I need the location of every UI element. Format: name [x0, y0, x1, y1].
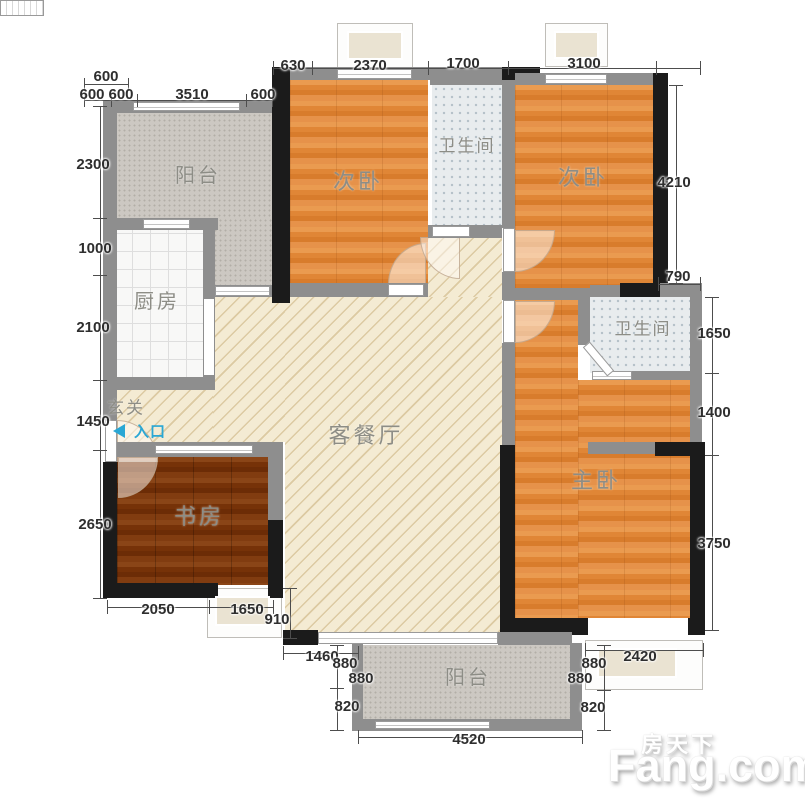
dim-label: 2370	[353, 58, 386, 75]
window	[133, 102, 240, 111]
room-label-living-dining: 客餐厅	[328, 425, 403, 447]
balcony-top-floor-ext	[213, 218, 272, 295]
room-label-master-bedroom: 主卧	[571, 470, 621, 492]
balcony-bottom-window	[375, 721, 490, 729]
room-label-kitchen: 厨房	[134, 292, 180, 312]
dim-label: 2420	[623, 649, 656, 666]
dim-label: 820	[580, 700, 605, 717]
dim-label: 3750	[697, 536, 730, 553]
wall	[103, 100, 117, 420]
dim-label: 2100	[76, 320, 109, 337]
dim-label: 600	[108, 87, 133, 104]
floor-plan: 600 600 600 3510 600 630 2370 1700 3100 …	[0, 0, 805, 800]
bay-window-inner	[347, 31, 403, 60]
dim-label: 1650	[697, 326, 730, 343]
balcony-door-window	[318, 632, 498, 644]
dim-label: 4210	[657, 175, 690, 192]
wall	[690, 283, 702, 455]
wall	[590, 285, 620, 297]
dim-label: 600	[250, 87, 275, 104]
entrance-arrow-icon	[113, 424, 125, 438]
dim-label: 630	[280, 58, 305, 75]
dim-label: 880	[567, 671, 592, 688]
wall	[498, 632, 572, 645]
entrance-label: 入口	[134, 421, 166, 442]
dim-label: 3510	[175, 87, 208, 104]
dim-label: 2300	[76, 157, 109, 174]
bedroom-a-door-leaf	[388, 284, 424, 296]
room-label-bedroom-b: 次卧	[558, 167, 608, 189]
wall	[502, 272, 515, 300]
dim-label: 880	[348, 671, 373, 688]
bedroom-b-door-leaf	[503, 228, 515, 272]
wall	[588, 442, 655, 454]
wall-black	[268, 520, 283, 598]
dim-label: 1450	[76, 414, 109, 431]
dim-label: 910	[264, 612, 289, 629]
window	[545, 74, 607, 84]
room-label-bathroom-b: 卫生间	[615, 321, 672, 338]
dim-label: 1650	[230, 602, 263, 619]
window	[215, 286, 270, 296]
living-floor-main	[285, 297, 502, 633]
wall	[115, 377, 215, 390]
wall	[630, 371, 690, 380]
wall-black	[620, 283, 660, 297]
dim-label: 1400	[697, 405, 730, 422]
room-label-foyer: 玄关	[107, 400, 145, 417]
dim-label: 4520	[452, 732, 485, 749]
living-floor-west	[213, 295, 285, 442]
dim-label: 600	[79, 87, 104, 104]
dim-label: 600	[93, 69, 118, 86]
dim-label: 1700	[446, 56, 479, 73]
master-bedroom-floor-right	[578, 380, 690, 618]
wall-black	[103, 583, 218, 598]
wall	[578, 297, 590, 345]
wall-black	[655, 442, 705, 456]
wall	[502, 343, 515, 445]
room-label-bathroom-a: 卫生间	[439, 138, 496, 155]
watermark-brand-en: Fang.com	[608, 740, 805, 792]
master-door-leaf	[503, 300, 515, 343]
bathroom-a-door-leaf	[432, 226, 470, 237]
room-label-study: 书房	[174, 506, 224, 528]
wall	[502, 80, 515, 228]
room-label-balcony-top: 阳台	[175, 166, 221, 186]
study-window	[155, 445, 253, 454]
dim-label: 1000	[78, 241, 111, 258]
wall	[268, 442, 283, 520]
dim-label: 2650	[78, 517, 111, 534]
wall-black	[500, 445, 515, 631]
master-bedroom-floor-left	[515, 300, 578, 618]
room-label-balcony-bottom: 阳台	[445, 668, 491, 688]
dim-label: 820	[334, 699, 359, 716]
wall-black	[688, 618, 705, 635]
window	[143, 219, 190, 229]
dim-label: 3100	[567, 56, 600, 73]
bathroom-a-window	[0, 0, 44, 16]
kitchen-door-opening	[204, 299, 214, 375]
dim-label: 2050	[141, 602, 174, 619]
room-label-bedroom-a: 次卧	[333, 171, 383, 193]
dim-label: 790	[665, 269, 690, 286]
